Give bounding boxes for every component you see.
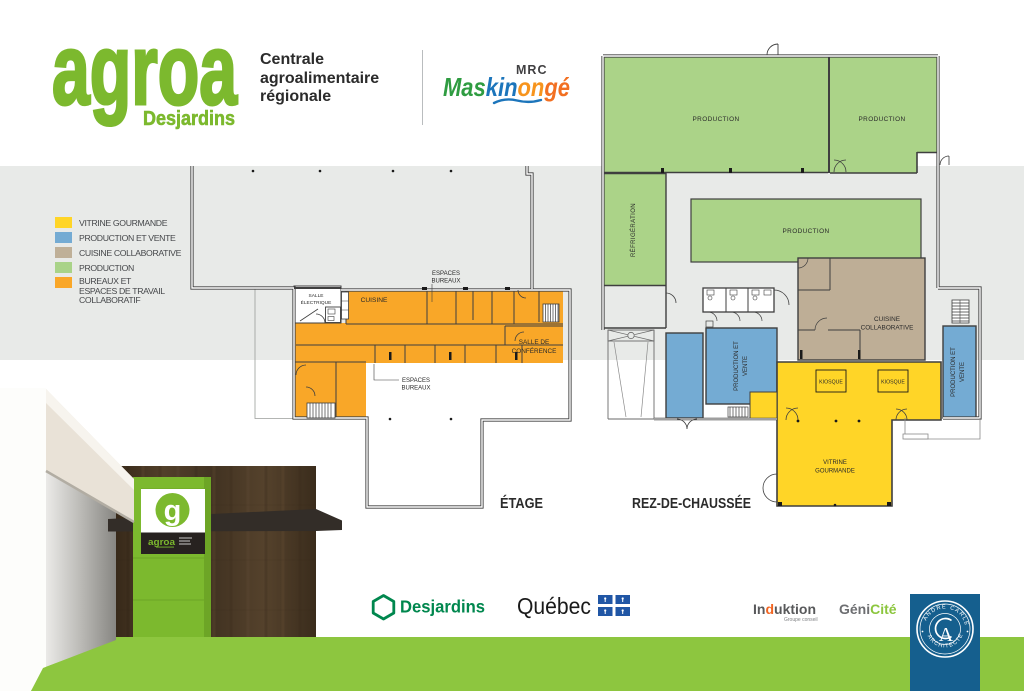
svg-text:A: A [939, 624, 954, 646]
svg-text:Québec: Québec [517, 593, 591, 619]
svg-text:Maskinongé: Maskinongé [443, 72, 570, 102]
svg-text:ESPACES: ESPACES [402, 378, 430, 384]
svg-text:RÉFRIGÉRATION: RÉFRIGÉRATION [630, 203, 637, 257]
svg-text:ESPACES: ESPACES [432, 271, 460, 277]
svg-text:KIOSQUE: KIOSQUE [881, 380, 905, 386]
svg-text:GOURMANDE: GOURMANDE [815, 469, 855, 475]
svg-text:PRODUCTION ET: PRODUCTION ET [734, 341, 740, 391]
svg-text:BUREAUX: BUREAUX [431, 279, 460, 285]
svg-text:COLLABORATIVE: COLLABORATIVE [861, 325, 914, 332]
svg-text:PRODUCTION: PRODUCTION [783, 228, 830, 235]
svg-text:ÉLECTRIQUE: ÉLECTRIQUE [301, 299, 332, 306]
svg-text:g: g [164, 495, 182, 527]
svg-text:Induktion: Induktion [753, 601, 816, 617]
svg-text:VENTE: VENTE [960, 362, 966, 382]
svg-text:PRODUCTION: PRODUCTION [693, 116, 740, 123]
svg-text:Desjardins: Desjardins [143, 108, 235, 130]
svg-text:REZ-DE-CHAUSSÉE: REZ-DE-CHAUSSÉE [632, 495, 751, 512]
svg-text:Desjardins: Desjardins [400, 597, 485, 617]
svg-text:CUISINE: CUISINE [874, 316, 900, 323]
svg-text:ÉTAGE: ÉTAGE [500, 495, 543, 512]
svg-text:PRODUCTION ET: PRODUCTION ET [951, 347, 957, 397]
svg-text:Groupe conseil: Groupe conseil [784, 617, 818, 623]
svg-text:KIOSQUE: KIOSQUE [819, 380, 843, 386]
svg-text:VITRINE: VITRINE [823, 460, 847, 466]
svg-text:PRODUCTION: PRODUCTION [859, 116, 906, 123]
svg-text:agroa: agroa [148, 537, 176, 548]
svg-text:SALLE: SALLE [309, 293, 324, 299]
svg-text:SALLE DE: SALLE DE [519, 339, 550, 346]
svg-text:GéniCité: GéniCité [839, 601, 897, 617]
svg-text:CONFÉRENCE: CONFÉRENCE [512, 346, 557, 355]
svg-text:CUISINE: CUISINE [361, 297, 388, 304]
svg-text:VENTE: VENTE [743, 356, 749, 376]
svg-text:BUREAUX: BUREAUX [401, 386, 430, 392]
